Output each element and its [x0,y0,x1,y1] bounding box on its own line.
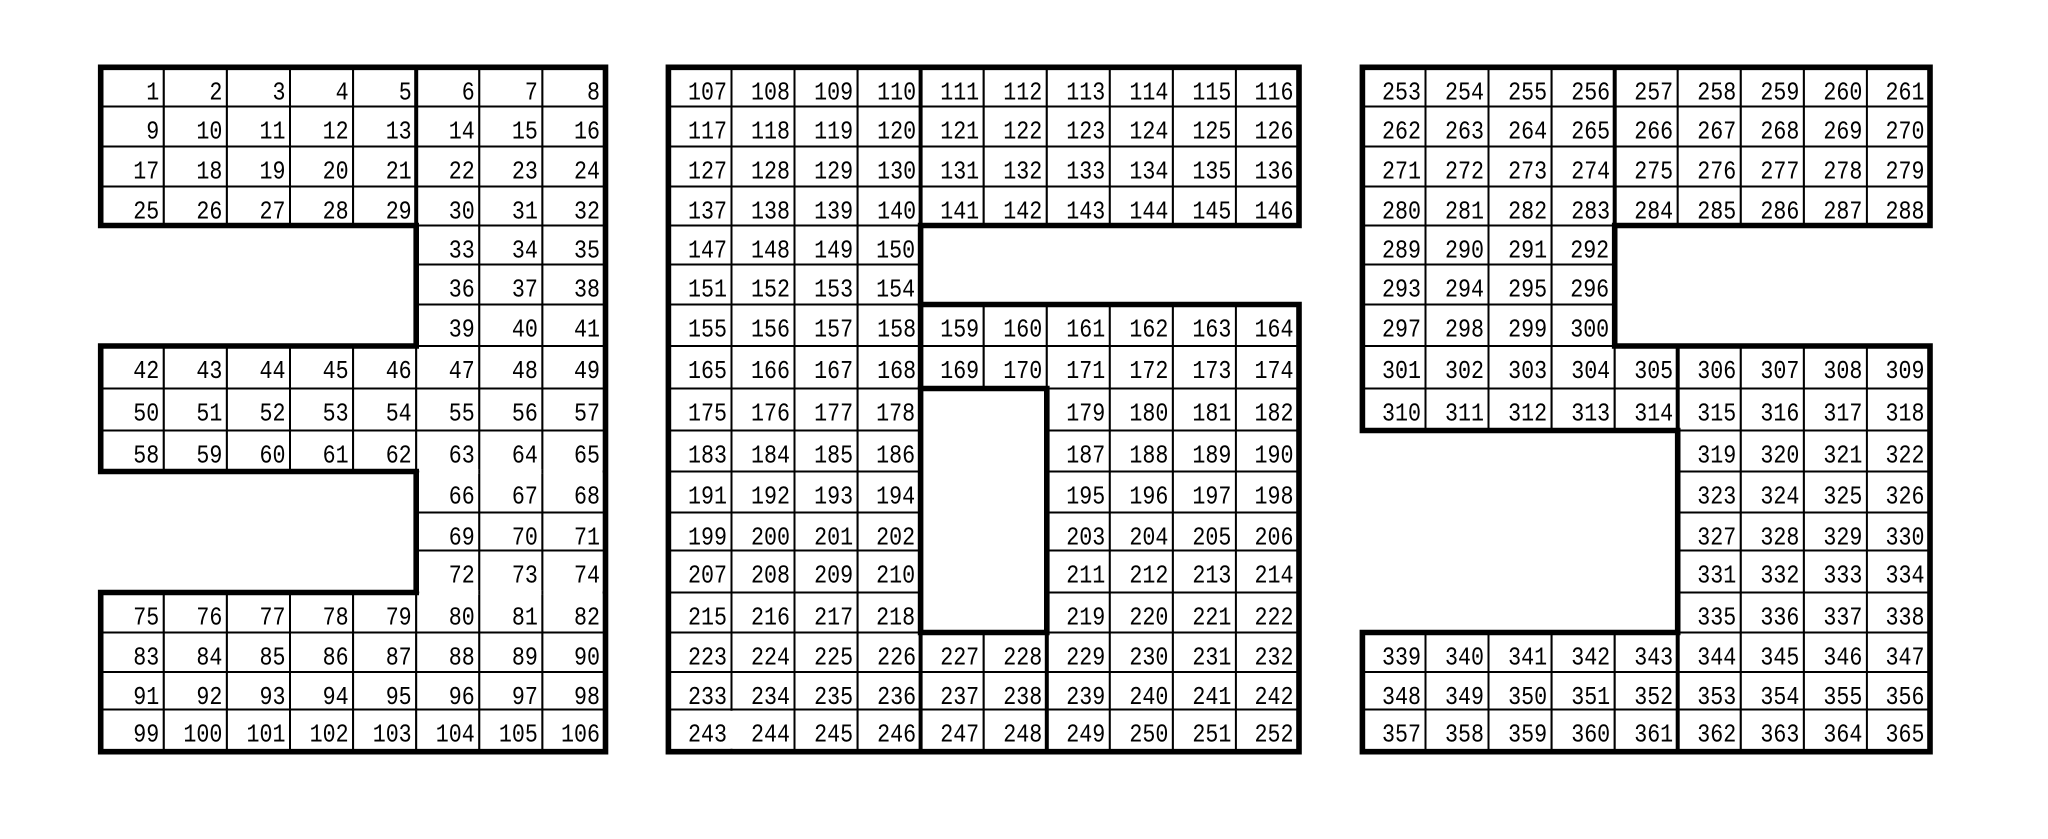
svg-text:8: 8 [587,77,600,107]
svg-text:266: 266 [1634,117,1673,147]
svg-text:158: 158 [877,315,916,345]
svg-text:202: 202 [876,523,915,553]
svg-text:293: 293 [1382,275,1421,305]
svg-text:300: 300 [1570,315,1609,345]
svg-text:119: 119 [814,117,853,147]
svg-text:346: 346 [1823,643,1862,673]
svg-text:281: 281 [1445,197,1484,227]
svg-text:319: 319 [1697,441,1736,471]
svg-text:211: 211 [1066,561,1105,591]
svg-text:13: 13 [386,117,412,147]
svg-text:67: 67 [512,482,538,512]
svg-text:288: 288 [1886,197,1925,227]
svg-text:287: 287 [1823,197,1862,227]
svg-text:254: 254 [1445,77,1484,107]
svg-text:147: 147 [688,236,727,266]
svg-text:315: 315 [1697,399,1736,429]
svg-text:267: 267 [1697,117,1736,147]
svg-text:82: 82 [574,603,600,633]
svg-text:69: 69 [449,523,475,553]
svg-text:251: 251 [1192,720,1231,750]
svg-text:327: 327 [1697,523,1736,553]
svg-text:260: 260 [1823,77,1862,107]
svg-text:301: 301 [1382,356,1421,386]
svg-text:154: 154 [876,275,915,305]
svg-text:128: 128 [751,157,790,187]
svg-text:243: 243 [688,720,727,750]
svg-text:92: 92 [196,682,222,712]
svg-text:217: 217 [814,603,853,633]
svg-text:162: 162 [1129,315,1168,345]
svg-text:6: 6 [462,77,475,107]
svg-text:73: 73 [512,561,538,591]
svg-text:230: 230 [1129,643,1168,673]
svg-text:96: 96 [449,682,475,712]
svg-text:227: 227 [940,643,979,673]
svg-text:363: 363 [1760,720,1799,750]
svg-text:329: 329 [1823,523,1862,553]
svg-text:3: 3 [273,77,286,107]
svg-text:90: 90 [574,643,600,673]
svg-text:103: 103 [373,720,412,750]
svg-text:45: 45 [323,356,349,386]
svg-text:232: 232 [1255,643,1294,673]
svg-text:134: 134 [1129,157,1168,187]
svg-text:197: 197 [1192,482,1231,512]
svg-text:264: 264 [1508,117,1547,147]
svg-text:102: 102 [310,720,349,750]
svg-text:163: 163 [1192,315,1231,345]
svg-text:7: 7 [525,77,538,107]
svg-text:94: 94 [323,682,349,712]
svg-text:172: 172 [1129,356,1168,386]
svg-text:153: 153 [814,275,853,305]
svg-text:331: 331 [1697,561,1736,591]
svg-text:233: 233 [688,682,727,712]
svg-text:262: 262 [1382,117,1421,147]
svg-text:104: 104 [436,720,475,750]
svg-text:237: 237 [940,682,979,712]
svg-text:238: 238 [1003,682,1042,712]
svg-text:279: 279 [1886,157,1925,187]
svg-text:336: 336 [1760,603,1799,633]
svg-text:123: 123 [1066,117,1105,147]
svg-text:100: 100 [183,720,222,750]
svg-text:1: 1 [146,77,159,107]
svg-text:37: 37 [512,275,538,305]
svg-text:22: 22 [449,157,475,187]
svg-text:263: 263 [1445,117,1484,147]
svg-text:150: 150 [876,236,915,266]
svg-text:207: 207 [688,561,727,591]
svg-text:199: 199 [688,523,727,553]
svg-text:231: 231 [1192,643,1231,673]
svg-text:235: 235 [814,682,853,712]
svg-text:39: 39 [449,315,475,345]
svg-text:161: 161 [1066,315,1105,345]
svg-text:360: 360 [1571,720,1610,750]
svg-text:182: 182 [1255,399,1294,429]
svg-text:228: 228 [1003,643,1042,673]
svg-text:129: 129 [814,157,853,187]
svg-text:15: 15 [512,117,538,147]
svg-text:165: 165 [688,356,727,386]
svg-text:225: 225 [814,643,853,673]
svg-text:52: 52 [260,399,286,429]
svg-text:240: 240 [1129,682,1168,712]
svg-text:215: 215 [688,603,727,633]
svg-text:244: 244 [751,720,790,750]
svg-text:117: 117 [688,117,727,147]
svg-text:270: 270 [1886,117,1925,147]
svg-text:184: 184 [751,441,790,471]
svg-text:107: 107 [688,77,727,107]
svg-text:146: 146 [1255,197,1294,227]
svg-text:176: 176 [751,399,790,429]
svg-text:65: 65 [574,441,600,471]
svg-text:213: 213 [1192,561,1231,591]
svg-text:155: 155 [688,315,727,345]
svg-text:294: 294 [1445,275,1484,305]
svg-text:144: 144 [1129,197,1168,227]
svg-text:25: 25 [133,197,159,227]
svg-text:234: 234 [751,682,790,712]
svg-text:344: 344 [1697,643,1736,673]
svg-text:164: 164 [1255,315,1294,345]
svg-text:299: 299 [1508,315,1547,345]
svg-text:216: 216 [751,603,790,633]
svg-text:348: 348 [1382,682,1421,712]
svg-text:311: 311 [1445,399,1484,429]
svg-text:325: 325 [1823,482,1862,512]
svg-text:93: 93 [260,682,286,712]
svg-text:206: 206 [1255,523,1294,553]
svg-text:76: 76 [196,603,222,633]
svg-text:364: 364 [1823,720,1862,750]
svg-text:214: 214 [1255,561,1294,591]
svg-text:210: 210 [876,561,915,591]
svg-text:72: 72 [449,561,475,591]
svg-text:220: 220 [1129,603,1168,633]
svg-text:353: 353 [1697,682,1736,712]
svg-text:339: 339 [1382,643,1421,673]
svg-text:295: 295 [1508,275,1547,305]
svg-text:186: 186 [876,441,915,471]
svg-text:145: 145 [1192,197,1231,227]
svg-text:268: 268 [1760,117,1799,147]
svg-text:80: 80 [449,603,475,633]
svg-text:337: 337 [1823,603,1862,633]
svg-text:28: 28 [323,197,349,227]
svg-text:219: 219 [1066,603,1105,633]
svg-text:291: 291 [1508,236,1547,266]
svg-text:31: 31 [512,197,538,227]
svg-text:70: 70 [512,523,538,553]
svg-text:61: 61 [323,441,349,471]
svg-text:357: 357 [1382,720,1421,750]
svg-text:283: 283 [1571,197,1610,227]
svg-text:318: 318 [1886,399,1925,429]
svg-text:53: 53 [323,399,349,429]
svg-text:259: 259 [1760,77,1799,107]
svg-text:249: 249 [1066,720,1105,750]
svg-text:280: 280 [1382,197,1421,227]
svg-text:87: 87 [386,643,412,673]
svg-text:330: 330 [1886,523,1925,553]
svg-text:86: 86 [323,643,349,673]
svg-text:138: 138 [751,197,790,227]
svg-text:178: 178 [876,399,915,429]
svg-text:324: 324 [1760,482,1799,512]
svg-text:29: 29 [386,197,412,227]
svg-text:159: 159 [940,315,979,345]
svg-text:340: 340 [1445,643,1484,673]
svg-text:16: 16 [574,117,600,147]
svg-text:106: 106 [561,720,600,750]
svg-text:356: 356 [1886,682,1925,712]
svg-text:160: 160 [1003,315,1042,345]
svg-text:317: 317 [1823,399,1862,429]
svg-text:201: 201 [814,523,853,553]
svg-text:275: 275 [1634,157,1673,187]
svg-text:278: 278 [1823,157,1862,187]
svg-text:23: 23 [512,157,538,187]
svg-text:292: 292 [1570,236,1609,266]
svg-text:17: 17 [133,157,159,187]
svg-text:193: 193 [814,482,853,512]
svg-text:55: 55 [449,399,475,429]
svg-text:248: 248 [1003,720,1042,750]
svg-text:354: 354 [1760,682,1799,712]
svg-text:9: 9 [146,117,159,147]
svg-text:126: 126 [1255,117,1294,147]
svg-text:58: 58 [133,441,159,471]
svg-text:38: 38 [574,275,600,305]
svg-text:125: 125 [1192,117,1231,147]
svg-text:143: 143 [1066,197,1105,227]
svg-text:265: 265 [1571,117,1610,147]
svg-text:313: 313 [1571,399,1610,429]
svg-text:68: 68 [574,482,600,512]
svg-text:200: 200 [751,523,790,553]
svg-text:351: 351 [1571,682,1610,712]
svg-text:19: 19 [260,157,286,187]
svg-text:194: 194 [876,482,915,512]
svg-text:274: 274 [1571,157,1610,187]
svg-text:349: 349 [1445,682,1484,712]
svg-text:245: 245 [814,720,853,750]
svg-text:171: 171 [1066,356,1105,386]
svg-text:169: 169 [940,356,979,386]
svg-text:113: 113 [1066,77,1105,107]
svg-text:271: 271 [1382,157,1421,187]
svg-text:12: 12 [323,117,349,147]
svg-text:2: 2 [209,77,222,107]
svg-text:140: 140 [877,197,916,227]
svg-text:316: 316 [1760,399,1799,429]
svg-text:306: 306 [1697,356,1736,386]
svg-text:342: 342 [1571,643,1610,673]
svg-text:110: 110 [877,77,916,107]
svg-text:174: 174 [1255,356,1294,386]
svg-text:312: 312 [1508,399,1547,429]
svg-text:157: 157 [814,315,853,345]
svg-text:224: 224 [751,643,790,673]
svg-text:183: 183 [688,441,727,471]
svg-text:43: 43 [196,356,222,386]
svg-text:34: 34 [512,236,538,266]
svg-text:132: 132 [1003,157,1042,187]
svg-text:195: 195 [1066,482,1105,512]
svg-text:323: 323 [1697,482,1736,512]
svg-text:66: 66 [449,482,475,512]
svg-text:168: 168 [877,356,916,386]
svg-text:124: 124 [1129,117,1168,147]
svg-text:221: 221 [1192,603,1231,633]
svg-text:5: 5 [399,77,412,107]
svg-text:250: 250 [1129,720,1168,750]
svg-text:50: 50 [133,399,159,429]
svg-text:152: 152 [751,275,790,305]
svg-text:179: 179 [1066,399,1105,429]
svg-text:20: 20 [323,157,349,187]
svg-text:173: 173 [1192,356,1231,386]
svg-text:198: 198 [1255,482,1294,512]
svg-text:49: 49 [574,356,600,386]
svg-text:332: 332 [1760,561,1799,591]
svg-text:347: 347 [1886,643,1925,673]
svg-text:137: 137 [688,197,727,227]
svg-text:282: 282 [1508,197,1547,227]
svg-text:255: 255 [1508,77,1547,107]
svg-text:101: 101 [247,720,286,750]
svg-text:47: 47 [449,356,475,386]
svg-text:59: 59 [196,441,222,471]
svg-text:44: 44 [260,356,286,386]
svg-text:36: 36 [449,275,475,305]
svg-text:191: 191 [688,482,727,512]
svg-text:310: 310 [1382,399,1421,429]
svg-text:30: 30 [449,197,475,227]
svg-text:204: 204 [1129,523,1168,553]
svg-text:222: 222 [1255,603,1294,633]
svg-text:359: 359 [1508,720,1547,750]
svg-text:114: 114 [1129,77,1168,107]
svg-text:40: 40 [512,315,538,345]
svg-text:118: 118 [751,117,790,147]
svg-text:185: 185 [814,441,853,471]
svg-text:361: 361 [1634,720,1673,750]
svg-text:242: 242 [1255,682,1294,712]
svg-text:286: 286 [1760,197,1799,227]
svg-text:229: 229 [1066,643,1105,673]
svg-text:277: 277 [1760,157,1799,187]
svg-text:116: 116 [1255,77,1294,107]
svg-text:335: 335 [1697,603,1736,633]
svg-text:79: 79 [386,603,412,633]
svg-text:212: 212 [1129,561,1168,591]
svg-text:326: 326 [1886,482,1925,512]
svg-text:112: 112 [1003,77,1042,107]
svg-text:362: 362 [1697,720,1736,750]
svg-text:41: 41 [574,315,600,345]
svg-text:98: 98 [574,682,600,712]
svg-text:136: 136 [1255,157,1294,187]
svg-text:321: 321 [1823,441,1862,471]
svg-text:141: 141 [940,197,979,227]
svg-text:91: 91 [133,682,159,712]
svg-text:167: 167 [814,356,853,386]
svg-text:285: 285 [1697,197,1736,227]
svg-text:177: 177 [814,399,853,429]
svg-text:309: 309 [1886,356,1925,386]
svg-text:122: 122 [1003,117,1042,147]
svg-text:297: 297 [1382,315,1421,345]
svg-text:272: 272 [1445,157,1484,187]
svg-text:64: 64 [512,441,538,471]
svg-text:89: 89 [512,643,538,673]
svg-text:305: 305 [1634,356,1673,386]
svg-text:302: 302 [1445,356,1484,386]
svg-text:77: 77 [260,603,286,633]
svg-text:352: 352 [1634,682,1673,712]
svg-text:166: 166 [751,356,790,386]
svg-text:226: 226 [877,643,916,673]
svg-text:135: 135 [1192,157,1231,187]
svg-text:350: 350 [1508,682,1547,712]
svg-text:269: 269 [1823,117,1862,147]
svg-text:314: 314 [1634,399,1673,429]
svg-text:84: 84 [196,643,222,673]
svg-text:74: 74 [574,561,600,591]
svg-text:32: 32 [574,197,600,227]
svg-text:252: 252 [1255,720,1294,750]
svg-text:247: 247 [940,720,979,750]
svg-text:303: 303 [1508,356,1547,386]
svg-text:46: 46 [386,356,412,386]
svg-text:333: 333 [1823,561,1862,591]
svg-text:48: 48 [512,356,538,386]
svg-text:223: 223 [688,643,727,673]
svg-text:115: 115 [1192,77,1231,107]
svg-text:208: 208 [751,561,790,591]
svg-text:290: 290 [1445,236,1484,266]
svg-text:308: 308 [1823,356,1862,386]
svg-text:209: 209 [814,561,853,591]
svg-text:99: 99 [133,720,159,750]
svg-text:88: 88 [449,643,475,673]
svg-text:131: 131 [940,157,979,187]
svg-text:175: 175 [688,399,727,429]
svg-text:256: 256 [1571,77,1610,107]
svg-text:203: 203 [1066,523,1105,553]
svg-text:338: 338 [1886,603,1925,633]
svg-text:261: 261 [1886,77,1925,107]
svg-text:322: 322 [1886,441,1925,471]
svg-text:51: 51 [196,399,222,429]
svg-text:111: 111 [940,77,979,107]
svg-text:343: 343 [1634,643,1673,673]
svg-text:149: 149 [814,236,853,266]
svg-text:239: 239 [1066,682,1105,712]
svg-text:341: 341 [1508,643,1547,673]
svg-text:95: 95 [386,682,412,712]
svg-text:139: 139 [814,197,853,227]
svg-text:180: 180 [1129,399,1168,429]
svg-text:4: 4 [336,77,349,107]
svg-text:21: 21 [386,157,412,187]
svg-text:105: 105 [499,720,538,750]
